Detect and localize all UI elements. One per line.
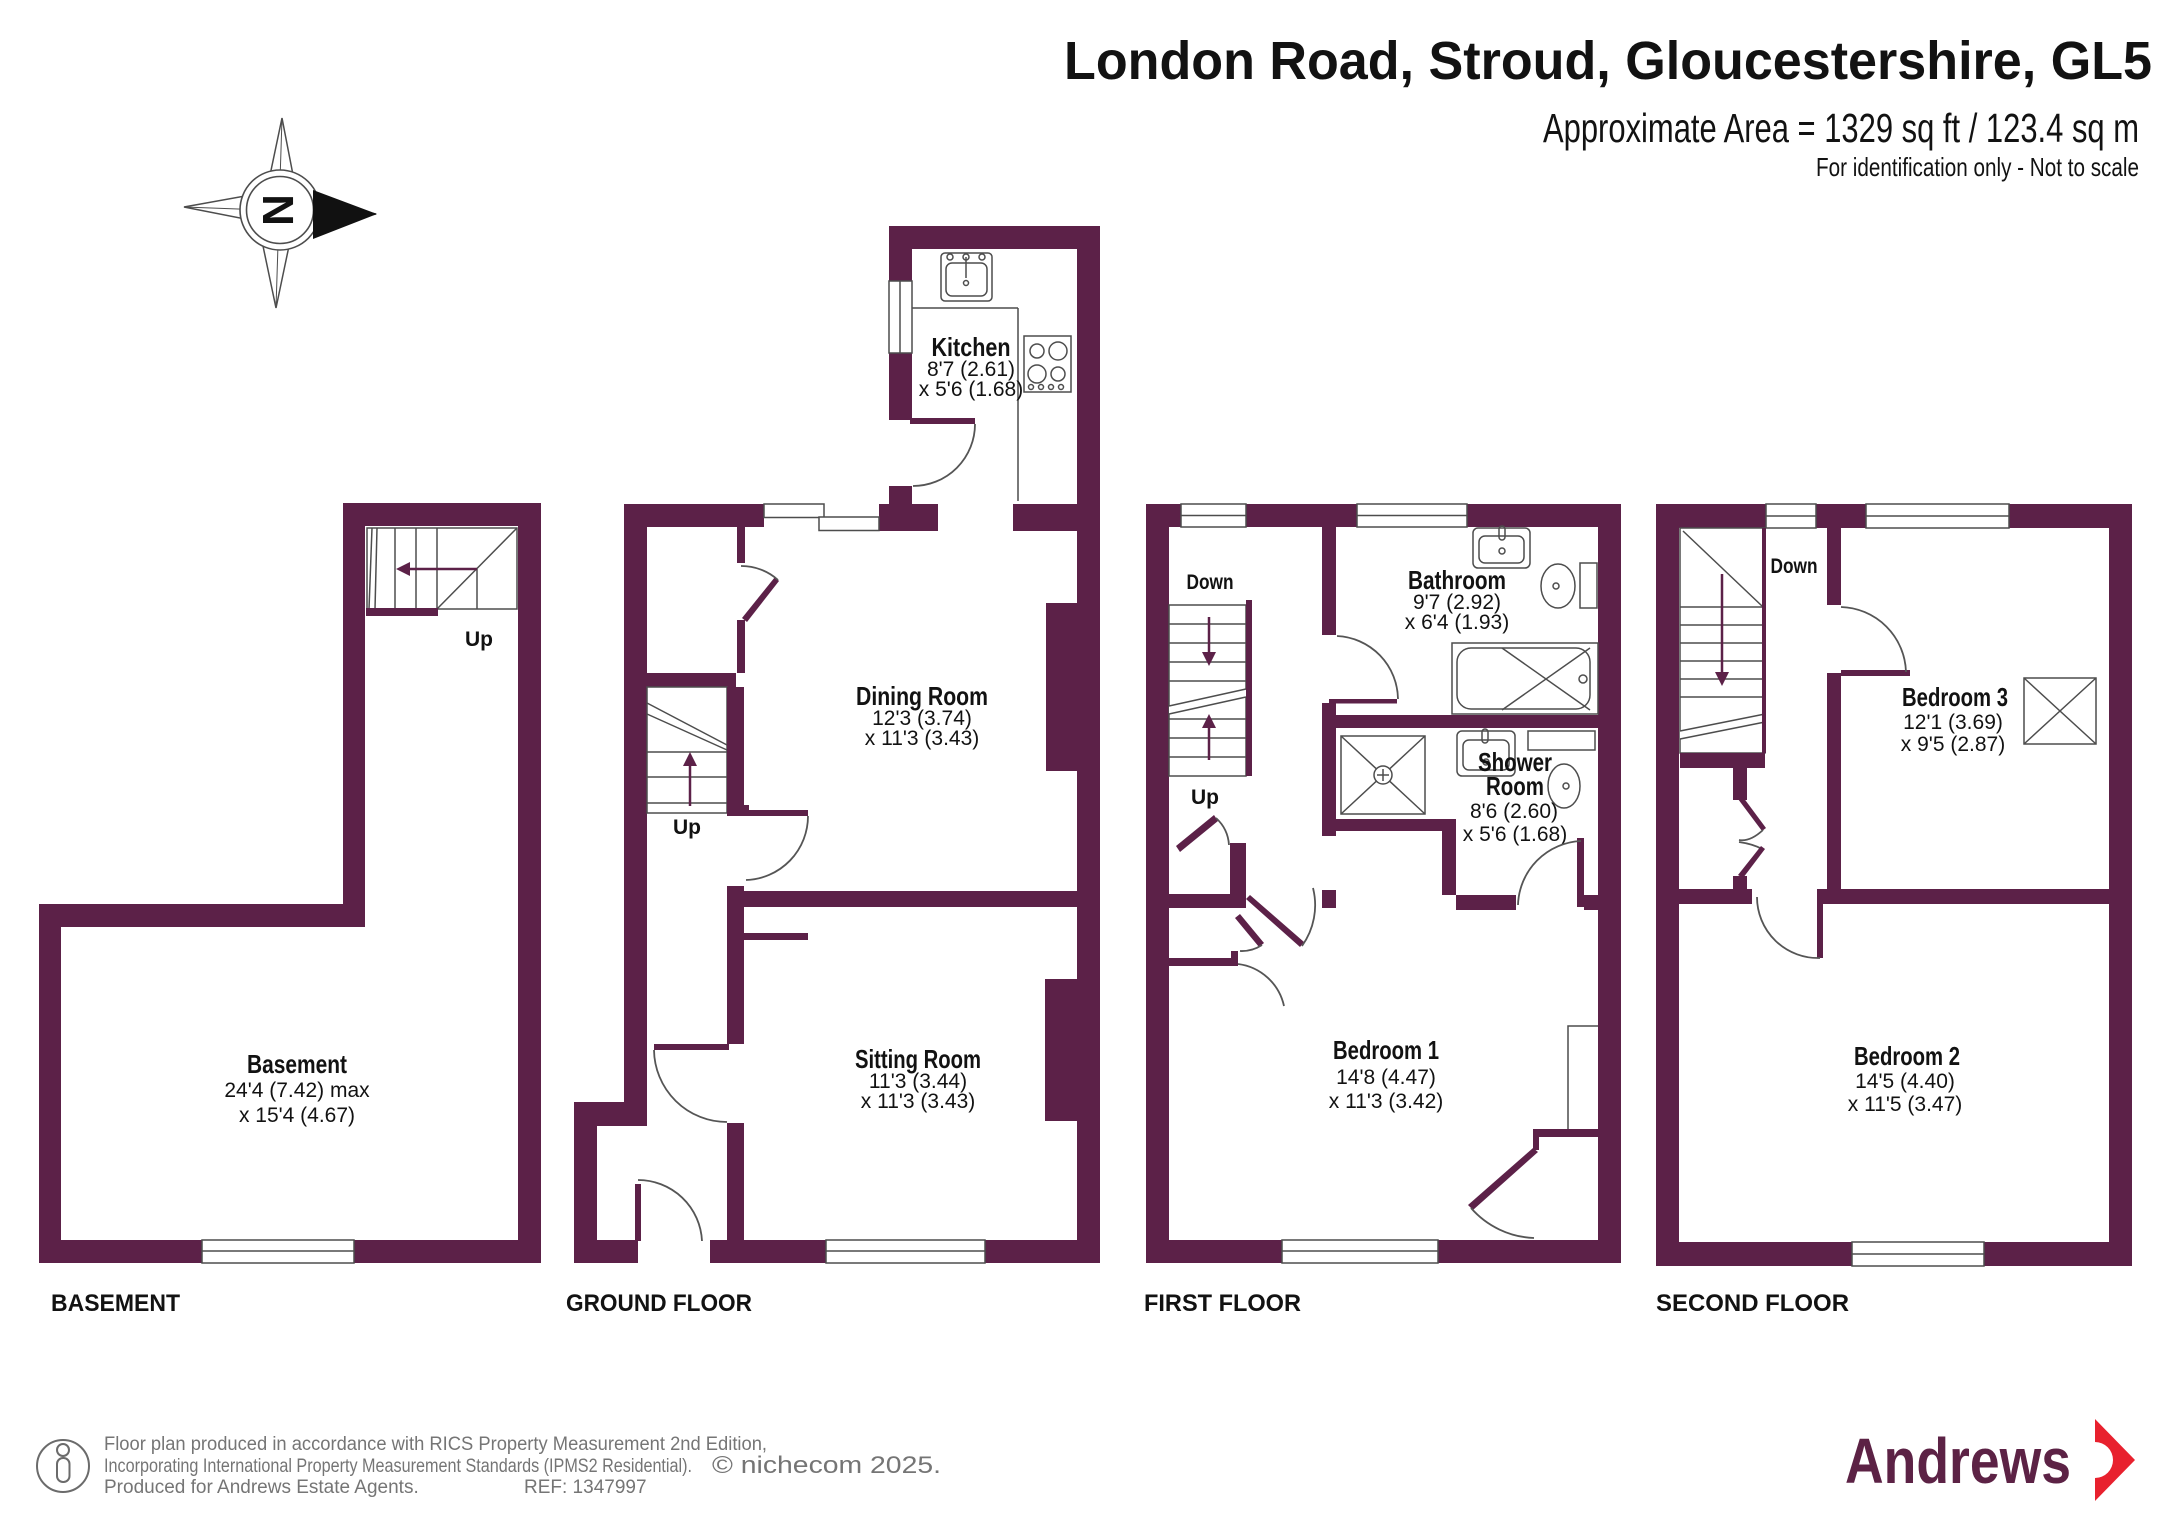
- svg-text:© nichecom 2025.: © nichecom 2025.: [712, 1452, 941, 1479]
- svg-text:x 11'3 (3.42): x 11'3 (3.42): [1329, 1090, 1444, 1113]
- svg-text:Basement: Basement: [247, 1049, 347, 1079]
- svg-text:Up: Up: [465, 628, 493, 651]
- svg-text:Bedroom 3: Bedroom 3: [1902, 682, 2008, 712]
- svg-text:London Road, Stroud, Glouceste: London Road, Stroud, Gloucestershire, GL…: [1064, 31, 2152, 91]
- svg-text:x 9'5 (2.87): x 9'5 (2.87): [1901, 733, 2005, 756]
- svg-text:N: N: [253, 194, 302, 226]
- svg-text:x 5'6 (1.68): x 5'6 (1.68): [919, 378, 1023, 401]
- svg-text:GROUND FLOOR: GROUND FLOOR: [566, 1290, 752, 1317]
- svg-text:x 11'3 (3.43): x 11'3 (3.43): [861, 1090, 976, 1113]
- svg-text:Up: Up: [673, 816, 701, 839]
- svg-text:For identification only - Not: For identification only - Not to scale: [1816, 152, 2139, 182]
- svg-text:Floor plan produced in accorda: Floor plan produced in accordance with R…: [104, 1434, 767, 1455]
- svg-text:Andrews: Andrews: [1845, 1425, 2071, 1497]
- svg-text:Produced for Andrews Estate Ag: Produced for Andrews Estate Agents.: [104, 1477, 419, 1498]
- svg-text:Incorporating International Pr: Incorporating International Property Mea…: [104, 1456, 692, 1477]
- svg-text:Down: Down: [1771, 555, 1818, 578]
- svg-text:12'1 (3.69): 12'1 (3.69): [1903, 711, 2003, 734]
- svg-text:x 11'3 (3.43): x 11'3 (3.43): [865, 727, 980, 750]
- svg-text:14'8 (4.47): 14'8 (4.47): [1336, 1066, 1436, 1089]
- svg-text:14'5 (4.40): 14'5 (4.40): [1855, 1070, 1955, 1093]
- svg-text:x 15'4 (4.67): x 15'4 (4.67): [239, 1104, 355, 1127]
- svg-text:x 11'5 (3.47): x 11'5 (3.47): [1848, 1093, 1963, 1116]
- svg-text:REF: 1347997: REF: 1347997: [524, 1477, 647, 1498]
- svg-text:BASEMENT: BASEMENT: [51, 1290, 180, 1317]
- svg-text:24'4 (7.42) max: 24'4 (7.42) max: [224, 1079, 370, 1102]
- svg-text:Bedroom 2: Bedroom 2: [1854, 1041, 1960, 1071]
- svg-text:Up: Up: [1191, 786, 1219, 809]
- svg-text:x 5'6 (1.68): x 5'6 (1.68): [1463, 823, 1567, 846]
- svg-text:x 6'4 (1.93): x 6'4 (1.93): [1405, 611, 1509, 634]
- svg-text:Approximate Area = 1329 sq ft: Approximate Area = 1329 sq ft / 123.4 sq…: [1543, 105, 2139, 151]
- svg-text:SECOND FLOOR: SECOND FLOOR: [1656, 1290, 1849, 1317]
- svg-text:FIRST FLOOR: FIRST FLOOR: [1144, 1290, 1301, 1317]
- svg-text:Down: Down: [1187, 571, 1234, 594]
- svg-text:Bedroom 1: Bedroom 1: [1333, 1035, 1439, 1065]
- svg-text:8'6 (2.60): 8'6 (2.60): [1470, 800, 1558, 823]
- svg-text:Room: Room: [1486, 771, 1544, 801]
